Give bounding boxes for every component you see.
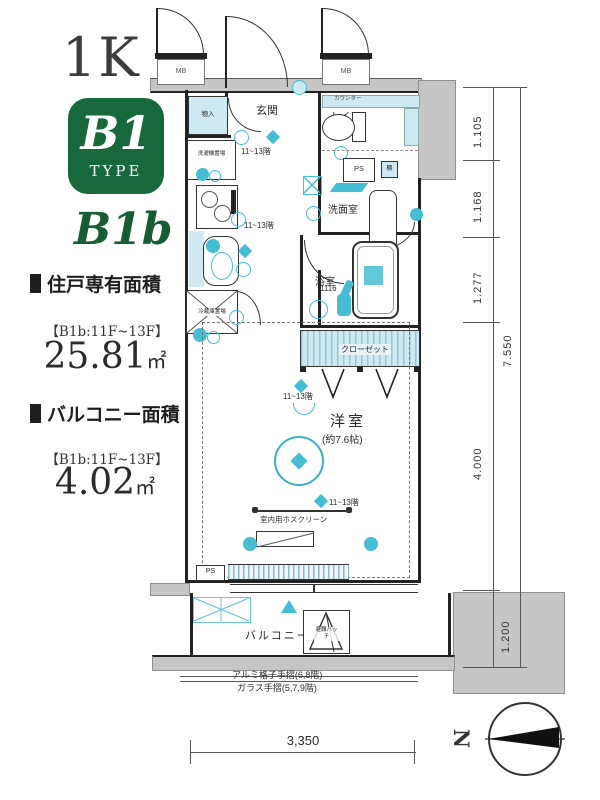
evacuation-marker-icon (281, 600, 297, 613)
window-hatch-band (228, 564, 349, 580)
hoscreen-end-right (346, 507, 352, 513)
dim-tick (463, 667, 527, 668)
stove-burner-1 (201, 191, 218, 208)
shelf-label: 棚 (382, 166, 397, 173)
pipe-space-box-bottom: PS (196, 565, 225, 581)
unit-area-value-row: 25.81㎡ (30, 336, 180, 377)
stove-burner-2 (214, 205, 231, 222)
floor-range-note-hall-1: 11~13階 (241, 146, 271, 157)
balcony-area-heading: バルコニー面積 (30, 400, 180, 427)
dim-tick (463, 590, 500, 591)
shelf-box: 棚 (381, 161, 398, 178)
layout-type-label: 1K (62, 26, 141, 89)
dimension-line-outer (520, 87, 521, 667)
washroom-label: 洗面室 (328, 201, 358, 216)
pipe-space-box: PS (343, 158, 375, 182)
dim-h-total: 3,350 (190, 733, 416, 748)
ps-top-label: PS (344, 164, 374, 173)
ceiling-symbol (234, 130, 249, 145)
hoscreen-bar (256, 510, 348, 512)
balcony-area-value-row: 4.02㎡ (30, 462, 180, 503)
floor-range-note-room-1: 11~13階 (283, 391, 313, 402)
bath-window-symbol (364, 266, 383, 285)
type-badge: B1 TYPE (68, 98, 164, 194)
dim-tick (463, 322, 500, 323)
washer-faucet-symbol (196, 168, 209, 181)
dim-v5: 1.200 (500, 605, 512, 653)
hoscreen-label: 室内用ホスクリーン (260, 514, 327, 525)
balcony-label: バルコニー (245, 627, 310, 643)
unit-area-value: 25.81 (43, 336, 146, 377)
floor-range-note-hall-2: 11~13階 (244, 220, 274, 231)
towel-bar-symbol (330, 183, 368, 192)
ac-outdoor-unit (193, 597, 251, 623)
washer-drain-symbol (209, 170, 221, 182)
evacuation-hatch-label: 避難ハッチ (314, 627, 340, 641)
dim-v-total: 7.550 (502, 315, 514, 367)
outlet-symbol (410, 208, 423, 221)
evacuation-hatch-box: 避難ハッチ (303, 610, 350, 654)
balcony-area-unit: ㎡ (135, 475, 155, 499)
washer-label: 洗濯機置場 (188, 151, 235, 158)
diamond-symbol (238, 244, 252, 258)
door-leaf-entrance (225, 16, 227, 88)
ps-bottom-label: PS (197, 568, 224, 575)
type-badge-code: B1 (68, 104, 164, 162)
balcony-right-wall (448, 593, 451, 657)
dim-tick (463, 237, 500, 238)
type-badge-word: TYPE (68, 162, 164, 180)
window-bench (256, 531, 314, 547)
ceiling-symbol (236, 262, 251, 277)
door-leaf-mb-right (321, 8, 323, 57)
meter-box-left: MB (157, 59, 205, 85)
unit-area-heading: 住戸専有面積 (30, 270, 161, 297)
vent-symbol (303, 176, 322, 195)
balcony-area-heading-text: バルコニー面積 (47, 400, 180, 427)
toilet-ceiling-line (322, 150, 418, 151)
unit-area-heading-text: 住戸専有面積 (47, 270, 161, 297)
compass-north-label: N (449, 729, 474, 748)
floor-range-note-room-2: 11~13階 (329, 497, 359, 508)
sink-faucet-symbol (206, 239, 220, 253)
railing-note-1: アルミ格子手摺(6,8階) (232, 668, 322, 681)
dimension-line-inner (493, 87, 494, 667)
square-bullet-icon (30, 274, 41, 293)
floorplan-page: 1K B1 TYPE B1b 住戸専有面積 【B1b:11F~13F】 25.8… (0, 0, 600, 800)
storage-label: 物入 (189, 111, 227, 118)
dimension-line-bottom (190, 752, 416, 753)
dim-v3: 1.277 (472, 256, 484, 304)
square-bullet-icon (30, 404, 41, 423)
door-arc-mb-left (158, 8, 204, 55)
meter-box-right: MB (322, 59, 370, 85)
counter-label: カウンター (334, 96, 362, 103)
mb-right-label: MB (323, 68, 369, 75)
sink-bowl-symbol (211, 252, 233, 280)
kitchen-counter-strip (189, 231, 204, 287)
subtype-label: B1b (74, 204, 173, 255)
neighbor-structure-top-right (418, 80, 456, 180)
door-arc-genkan (228, 98, 261, 132)
balcony-area-value: 4.02 (55, 462, 135, 503)
outlet-symbol (243, 537, 257, 551)
ceiling-symbol (306, 206, 321, 221)
mb-left-label: MB (158, 68, 204, 75)
bath-stool-symbol (309, 300, 328, 319)
diamond-symbol (266, 130, 280, 144)
doorbell-symbol (292, 80, 307, 95)
western-room-size-label: (約7.6帖) (322, 431, 363, 446)
railing-note-2: ガラス手摺(5,7,9階) (237, 681, 317, 694)
dim-tick (463, 87, 527, 88)
hoscreen-end-left (252, 507, 258, 513)
storage-box: 物入 (188, 96, 228, 135)
wall-storage-bottom (185, 135, 231, 138)
unit-area-unit: ㎡ (147, 349, 167, 373)
sliding-door-center (313, 584, 315, 593)
door-arc-mb-right (323, 8, 369, 55)
door-leaf-mb-left (156, 8, 158, 57)
balcony-sliding-door (230, 584, 418, 593)
bath-left-wall (300, 235, 303, 327)
toilet-side-shelf (404, 108, 419, 146)
bathroom-size-label: 1116 (320, 284, 337, 293)
dim-v1: 1.105 (472, 100, 484, 148)
dim-v4: 4.000 (472, 432, 484, 480)
door-arc-entrance (227, 16, 288, 87)
balcony-side-wall (150, 583, 190, 596)
dim-v2: 1.168 (472, 175, 484, 223)
outlet-symbol (364, 537, 378, 551)
dim-tick (463, 160, 500, 161)
toilet-bowl (322, 114, 355, 141)
western-room-label: 洋室 (330, 410, 366, 431)
compass-icon (455, 695, 585, 790)
stove-handle (231, 190, 236, 214)
